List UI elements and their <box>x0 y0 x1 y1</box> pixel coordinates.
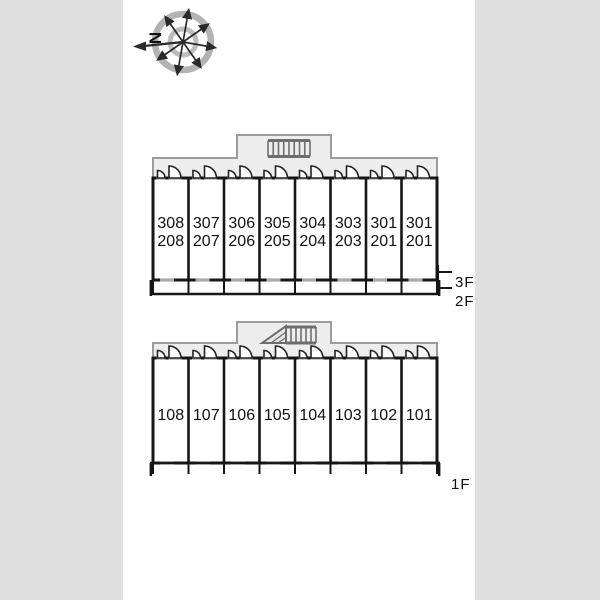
room-number: 106 <box>228 407 255 424</box>
room-number: 102 <box>370 407 397 424</box>
room-number: 201 <box>406 233 433 250</box>
room-number: 308 <box>157 215 184 232</box>
floorplan-upper-floors: 3082083072073062063052053042043032033012… <box>140 125 460 305</box>
room-number: 103 <box>335 407 362 424</box>
room-number: 306 <box>228 215 255 232</box>
floor-label-1f: 1F <box>451 477 471 493</box>
room-number: 204 <box>299 233 326 250</box>
room-number: 208 <box>157 233 184 250</box>
room-number: 206 <box>228 233 255 250</box>
room-number: 304 <box>299 215 326 232</box>
room-number: 108 <box>157 407 184 424</box>
room-number: 305 <box>264 215 291 232</box>
room-number: 105 <box>264 407 291 424</box>
floor-label-3f: 3F <box>455 275 475 291</box>
room-number: 301 <box>370 215 397 232</box>
floorplan-first-floor: 108107106105104103102101 <box>140 312 460 487</box>
room-number: 101 <box>406 407 433 424</box>
compass-rose: N <box>128 2 232 86</box>
room-number: 303 <box>335 215 362 232</box>
room-number: 301 <box>406 215 433 232</box>
room-number: 205 <box>264 233 291 250</box>
floor-label-2f: 2F <box>455 294 475 310</box>
room-number: 203 <box>335 233 362 250</box>
room-number: 201 <box>370 233 397 250</box>
room-number: 307 <box>193 215 220 232</box>
room-number: 207 <box>193 233 220 250</box>
page-background: N 30820830720730620630520530420430320330… <box>0 0 600 600</box>
room-number: 107 <box>193 407 220 424</box>
compass-north-label: N <box>146 32 165 44</box>
room-number: 104 <box>299 407 326 424</box>
